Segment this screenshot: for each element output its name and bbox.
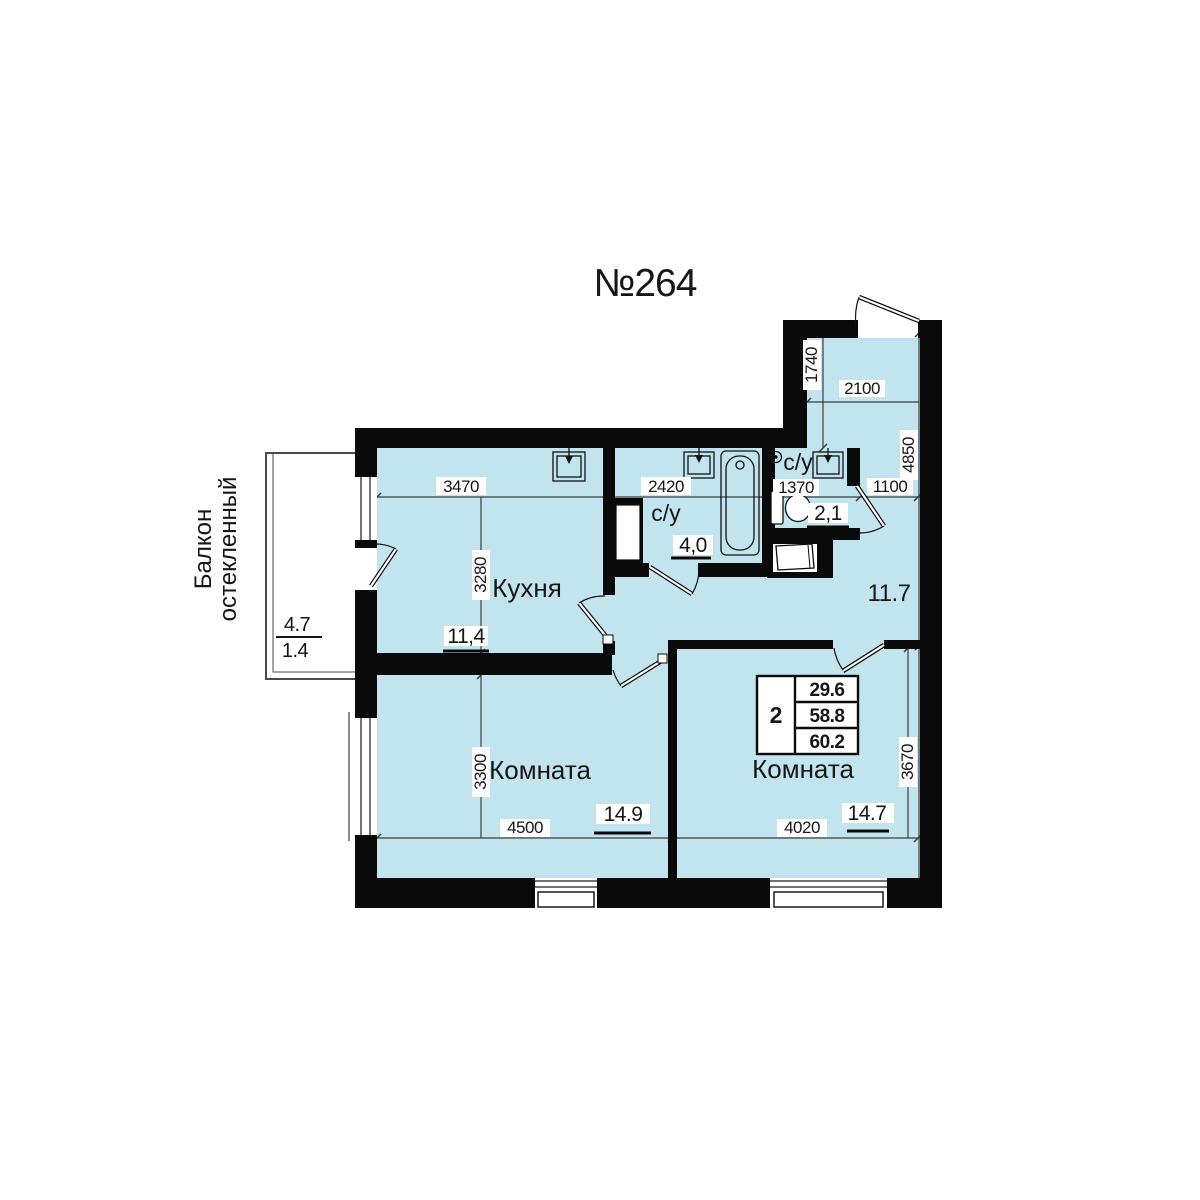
vent-shaft-kitchen [616, 505, 640, 560]
hallway-area-label: 11.7 [868, 580, 911, 607]
entry-door [855, 297, 919, 326]
dim-wc-width: 1370 [778, 478, 814, 497]
dim-entry-width: 2100 [844, 379, 880, 398]
right-room-area-label: 14.7 [848, 802, 887, 825]
total-area-value: 60.2 [810, 732, 845, 753]
left-room-window [349, 712, 377, 841]
dim-kitchen-depth: 3280 [471, 557, 490, 593]
balcony-area-full: 4.7 [284, 614, 311, 636]
bathroom-sink-icon [684, 448, 714, 478]
kitchen-area-label: 11,4 [447, 625, 485, 648]
balcony-name-line2: остекленный [215, 477, 242, 622]
kitchen-name-label: Кухня [492, 573, 562, 603]
kitchen-window [355, 477, 377, 540]
wc-area-label: 2,1 [814, 502, 842, 525]
balcony-name-line1: Балкон [190, 509, 217, 589]
balcony-labels: Балкон остекленный 4.7 1.4 [190, 477, 322, 662]
apartment-info-table: 2 29.6 58.8 60.2 [757, 676, 858, 754]
left-room-area-label: 14.9 [604, 803, 643, 826]
dim-left-room-depth: 3300 [471, 754, 490, 790]
page-title: №264 [594, 262, 697, 305]
balcony-area-reduced: 1.4 [282, 640, 309, 662]
floor-plan-canvas: 3470 2420 1370 1100 2100 4500 4020 3280 … [0, 0, 1200, 1200]
left-room-name-label: Комната [489, 755, 591, 785]
living-area-value: 29.6 [810, 680, 845, 701]
dim-left-room-width: 4500 [507, 818, 543, 837]
wc-sink-icon [813, 448, 843, 478]
vent-shaft-washer [773, 544, 817, 572]
bathroom-area-label: 4,0 [679, 534, 707, 557]
bottom-window-left [535, 878, 597, 907]
bottom-window-right [770, 878, 887, 907]
rooms-count-value: 2 [770, 702, 783, 728]
balcony-outline [266, 453, 357, 679]
area-value: 58.8 [810, 706, 845, 727]
right-room-name-label: Комната [752, 754, 854, 784]
apartment-floor [377, 338, 920, 878]
dim-kitchen-width: 3470 [443, 477, 479, 496]
dim-bathroom-width: 2420 [648, 477, 684, 496]
dim-right-room-width: 4020 [784, 818, 820, 837]
dim-right-room-depth: 3670 [898, 744, 917, 780]
dim-entry-depth: 1740 [802, 347, 821, 383]
bathroom-name-label: с/у [651, 500, 681, 526]
floor-plan-page: 3470 2420 1370 1100 2100 4500 4020 3280 … [0, 0, 1200, 1200]
dim-hallway-depth: 4850 [899, 437, 918, 473]
wc-name-label: с/у [783, 449, 813, 475]
